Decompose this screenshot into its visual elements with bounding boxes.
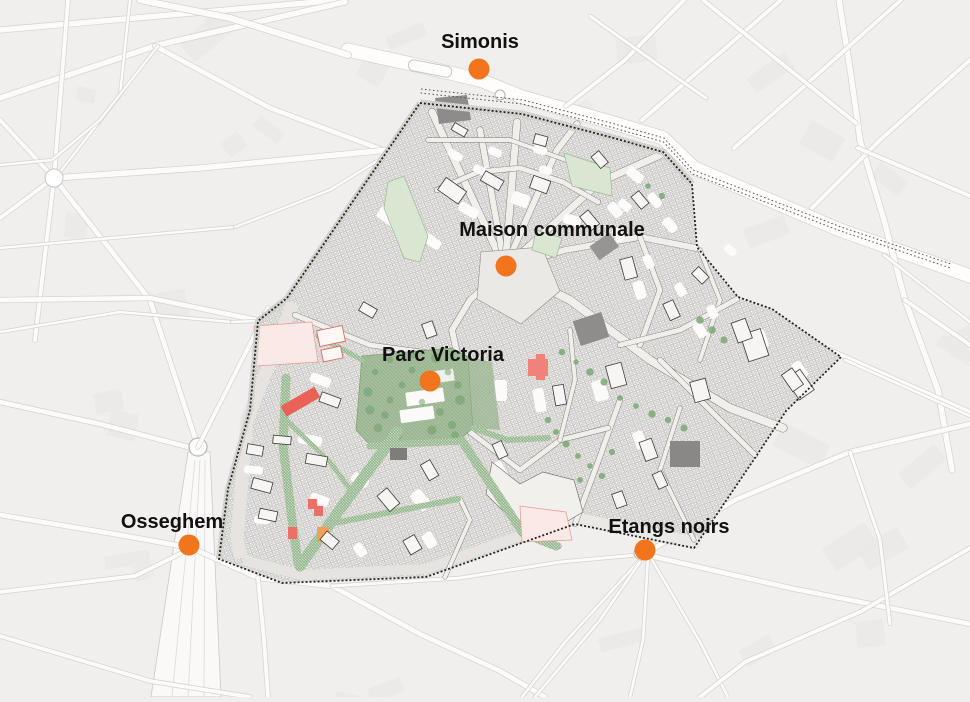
- svg-text:Parc Victoria: Parc Victoria: [382, 344, 505, 366]
- svg-text:Osseghem: Osseghem: [121, 511, 223, 533]
- svg-text:Simonis: Simonis: [441, 31, 519, 53]
- svg-text:Etangs noirs: Etangs noirs: [608, 516, 729, 538]
- svg-text:Maison communale: Maison communale: [459, 219, 645, 241]
